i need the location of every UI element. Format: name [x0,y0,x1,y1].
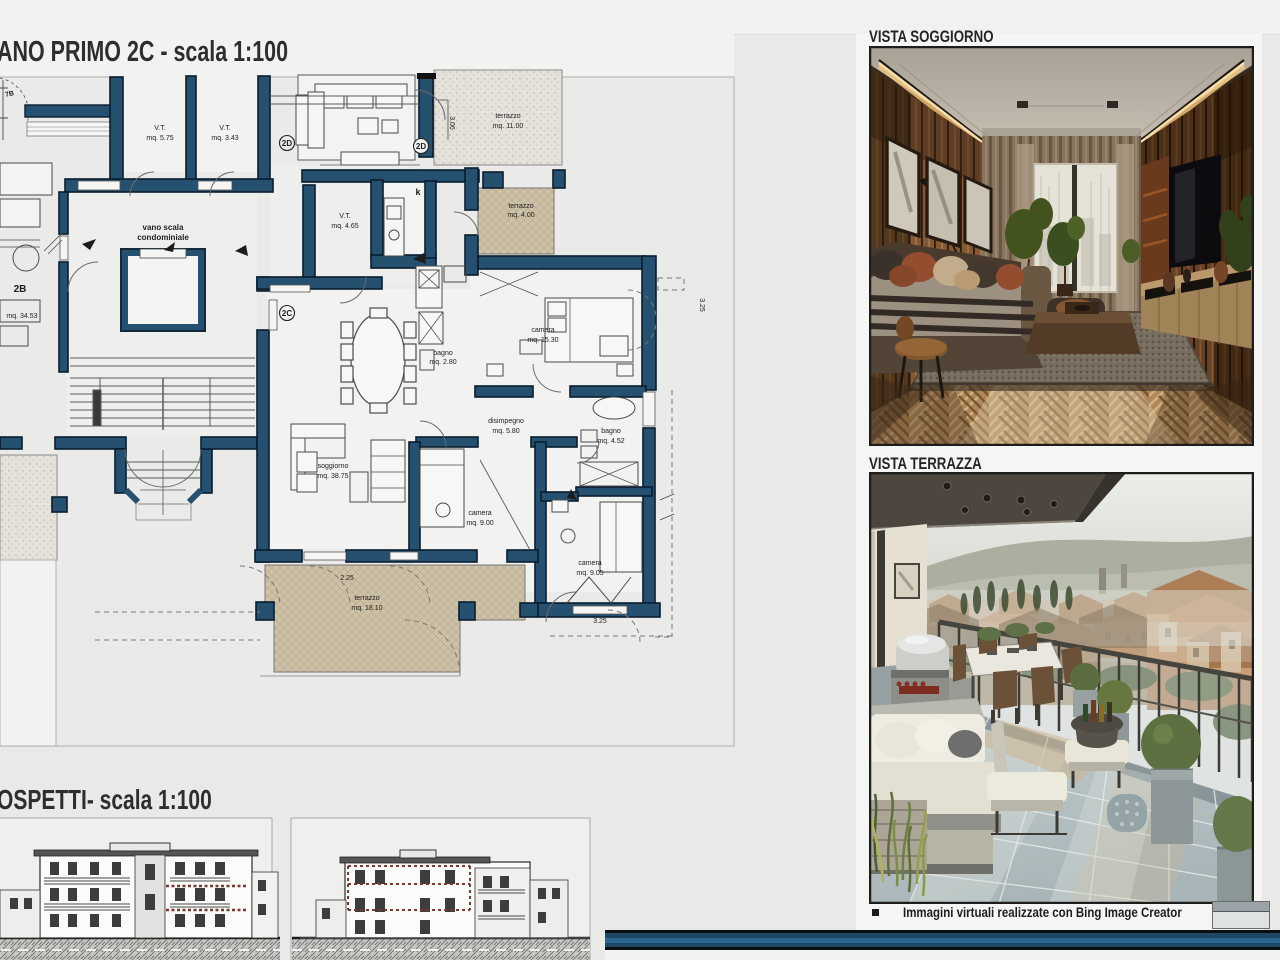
svg-text:camera: camera [531,327,554,334]
svg-text:V.T.: V.T. [219,125,230,132]
svg-text:mq. 4.52: mq. 4.52 [597,438,624,445]
svg-text:camera: camera [578,560,601,567]
svg-text:mq. 5.80: mq. 5.80 [492,428,519,435]
svg-text:3.25: 3.25 [593,618,607,625]
svg-text:terrazzo: terrazzo [495,113,520,120]
svg-text:2D: 2D [416,142,426,151]
svg-text:disimpegno: disimpegno [488,418,524,425]
svg-text:camera: camera [468,510,491,517]
svg-text:bagno: bagno [433,350,453,357]
svg-text:mq. 18.10: mq. 18.10 [351,605,382,612]
svg-text:mq. 5.75: mq. 5.75 [146,135,173,142]
svg-text:2B: 2B [14,284,27,295]
svg-text:soggiorno: soggiorno [318,463,349,470]
svg-text:mq. 3.43: mq. 3.43 [211,135,238,142]
svg-text:mq. 9.05: mq. 9.05 [576,570,603,577]
svg-text:mq. 38.75: mq. 38.75 [317,473,348,480]
svg-text:2.25: 2.25 [340,575,354,582]
svg-text:mq. 4.65: mq. 4.65 [331,223,358,230]
svg-text:mq. 15.30: mq. 15.30 [527,337,558,344]
svg-text:mq. 2.80: mq. 2.80 [429,359,456,366]
svg-text:V.T.: V.T. [154,125,165,132]
svg-text:3.06: 3.06 [448,116,455,130]
svg-text:terrazzo: terrazzo [354,595,379,602]
svg-text:mq. 11.00: mq. 11.00 [493,123,524,130]
svg-text:2C: 2C [282,309,292,318]
svg-text:terrazzo: terrazzo [508,203,533,210]
svg-text:2D: 2D [282,139,292,148]
svg-text:3.25: 3.25 [698,298,705,312]
svg-text:condominiale: condominiale [137,233,189,242]
svg-text:V.T.: V.T. [339,213,350,220]
svg-text:mq. 34.53: mq. 34.53 [6,313,37,320]
svg-text:bagno: bagno [601,428,621,435]
svg-text:mq. 9.00: mq. 9.00 [466,520,493,527]
svg-text:mq. 4.00: mq. 4.00 [507,212,534,219]
svg-text:vano scala: vano scala [143,223,184,232]
